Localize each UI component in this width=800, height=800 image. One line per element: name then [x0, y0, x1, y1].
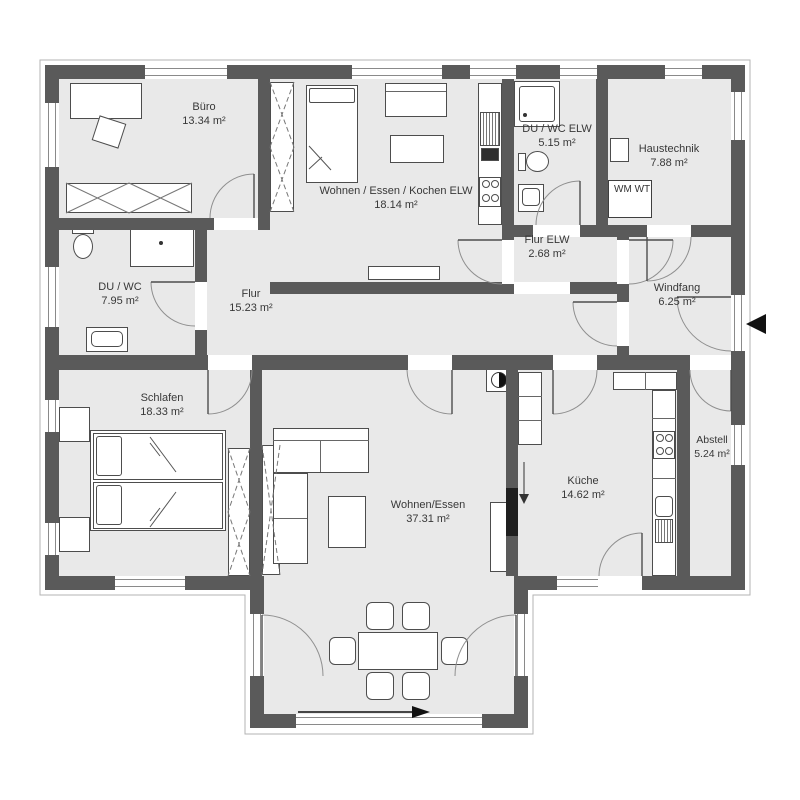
room-area: 7.88 m² [604, 156, 734, 170]
room-label-du-wc: DU / WC 7.95 m² [59, 280, 181, 308]
room-label-wohnen-elw: Wohnen / Essen / Kochen ELW 18.14 m² [300, 184, 492, 212]
room-label-abstell: Abstell 5.24 m² [668, 433, 756, 461]
entrance-arrow-icon [746, 314, 766, 334]
room-area: 5.15 m² [511, 136, 603, 150]
room-name: Flur ELW [502, 233, 592, 247]
room-area: 2.68 m² [502, 247, 592, 261]
room-label-wohnen-essen: Wohnen/Essen 37.31 m² [363, 498, 493, 526]
room-label-flur-elw: Flur ELW 2.68 m² [502, 233, 592, 261]
room-name: DU / WC ELW [511, 122, 603, 136]
room-area: 18.33 m² [97, 405, 227, 419]
room-label-buero: Büro 13.34 m² [139, 100, 269, 128]
room-name: Haustechnik [604, 142, 734, 156]
room-area: 7.95 m² [59, 294, 181, 308]
room-label-schlafen: Schlafen 18.33 m² [97, 391, 227, 419]
room-name: Schlafen [97, 391, 227, 405]
room-name: Küche [518, 474, 648, 488]
room-name: DU / WC [59, 280, 181, 294]
room-name: Abstell [668, 433, 756, 447]
room-area: 15.23 m² [186, 301, 316, 315]
room-name: Flur [186, 287, 316, 301]
room-label-du-wc-elw: DU / WC ELW 5.15 m² [511, 122, 603, 150]
room-area: 37.31 m² [363, 512, 493, 526]
room-area: 18.14 m² [300, 198, 492, 212]
room-label-kueche: Küche 14.62 m² [518, 474, 648, 502]
room-area: 6.25 m² [622, 295, 732, 309]
room-name: Windfang [622, 281, 732, 295]
room-area: 5.24 m² [668, 447, 756, 461]
room-name: Wohnen / Essen / Kochen ELW [300, 184, 492, 198]
room-label-flur: Flur 15.23 m² [186, 287, 316, 315]
room-label-windfang: Windfang 6.25 m² [622, 281, 732, 309]
floor-plan: WM WT [0, 0, 800, 800]
room-area: 14.62 m² [518, 488, 648, 502]
room-name: Büro [139, 100, 269, 114]
room-name: Wohnen/Essen [363, 498, 493, 512]
sliding-door-arrow-icon [298, 706, 430, 718]
room-label-haustechnik: Haustechnik 7.88 m² [604, 142, 734, 170]
room-area: 13.34 m² [139, 114, 269, 128]
